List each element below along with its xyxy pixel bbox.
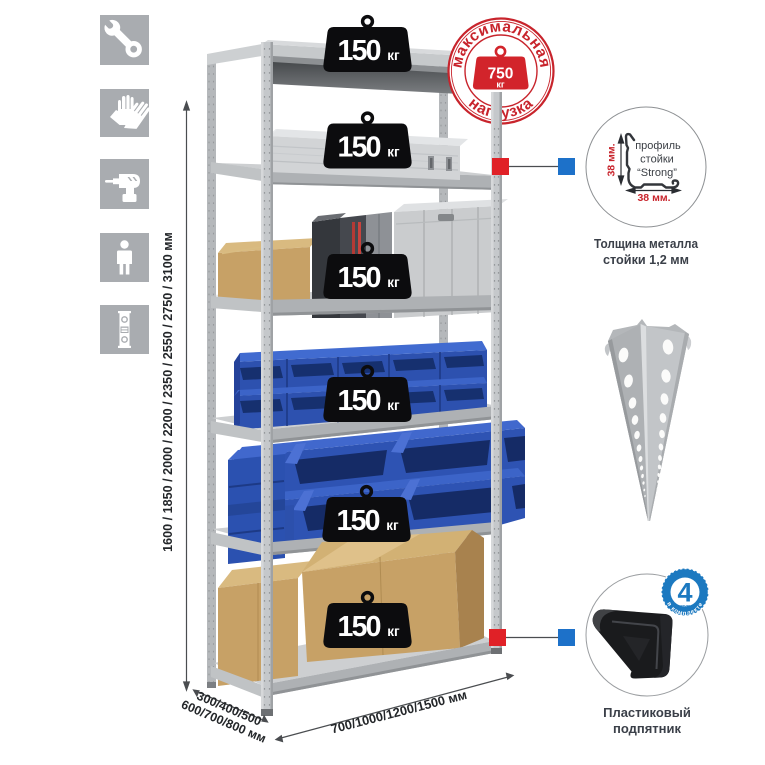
- svg-text:38 мм.: 38 мм.: [606, 143, 618, 176]
- svg-text:“Strong”: “Strong”: [637, 167, 677, 179]
- svg-text:1600 / 1850 / 2000 / 2200 / 23: 1600 / 1850 / 2000 / 2200 / 2350 / 2550 …: [161, 232, 175, 552]
- svg-text:профиль: профиль: [635, 140, 681, 152]
- svg-text:стойки: стойки: [640, 154, 674, 166]
- svg-text:Толщина металла: Толщина металла: [594, 236, 699, 251]
- svg-text:38 мм.: 38 мм.: [637, 192, 670, 204]
- svg-text:Пластиковый: Пластиковый: [603, 705, 691, 720]
- svg-text:подпятник: подпятник: [613, 721, 682, 736]
- svg-text:штуки: штуки: [678, 604, 692, 609]
- svg-text:кг: кг: [496, 80, 505, 90]
- svg-text:стойки 1,2 мм: стойки 1,2 мм: [603, 252, 689, 267]
